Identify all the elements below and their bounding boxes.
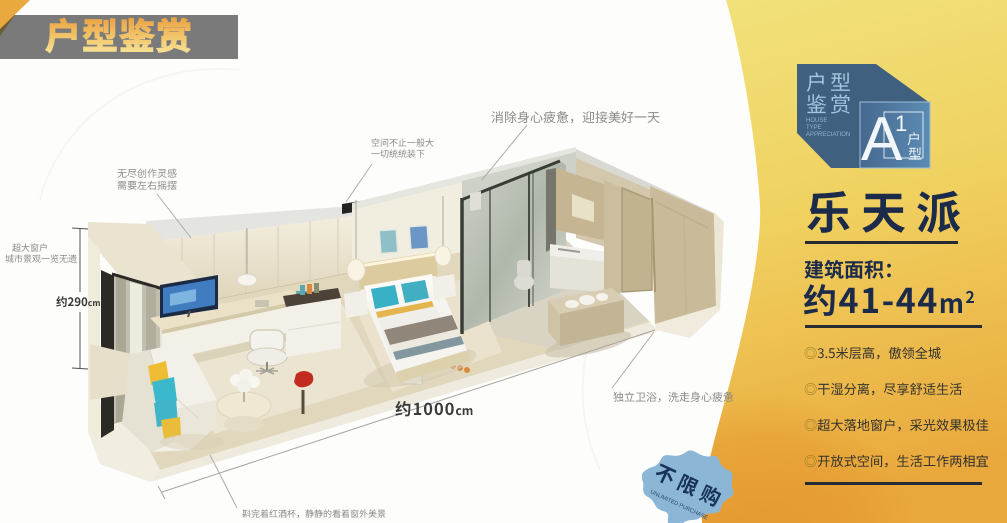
svg-text:HOUSE: HOUSE: [806, 118, 827, 124]
svg-text:TYPE: TYPE: [806, 125, 822, 131]
svg-text:APPRECIATION: APPRECIATION: [806, 132, 850, 138]
svg-text:1: 1: [895, 111, 907, 136]
